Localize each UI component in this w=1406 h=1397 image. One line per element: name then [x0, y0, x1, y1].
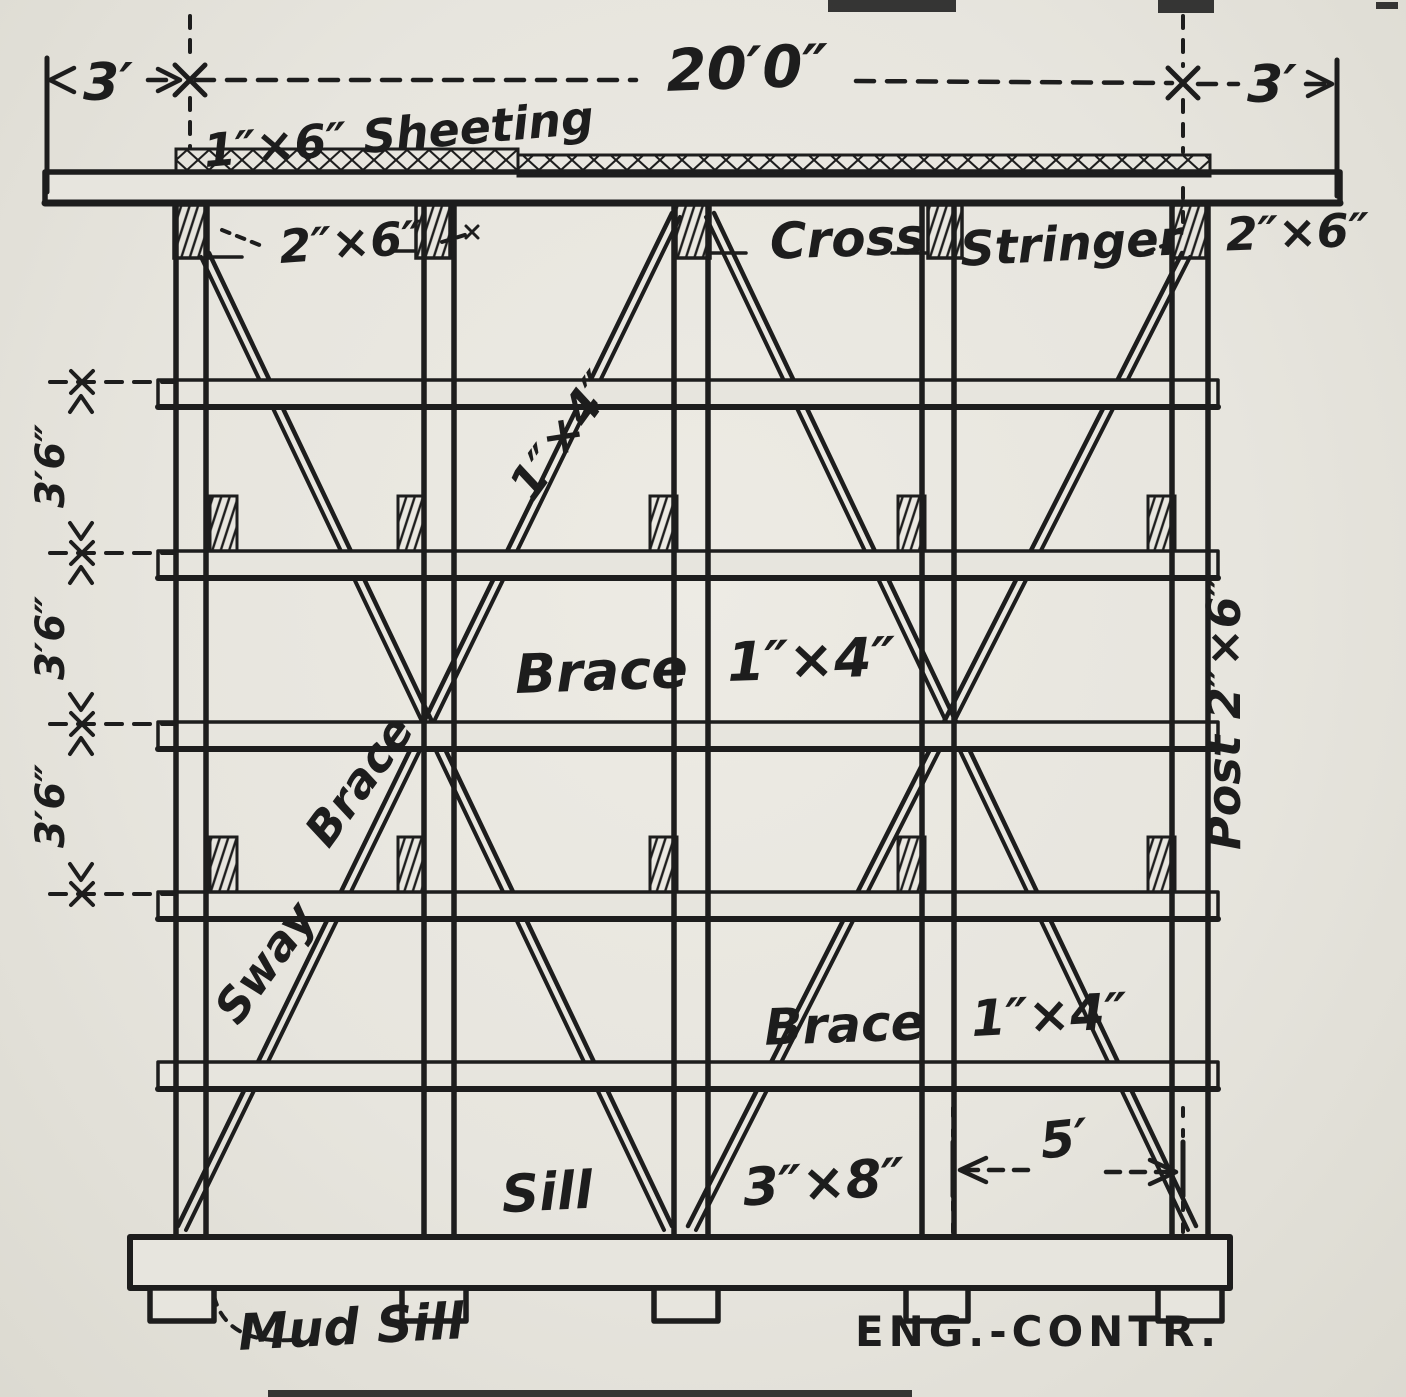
scab-block: [1148, 496, 1175, 551]
dim-label-overhang-left: 3′: [83, 53, 133, 113]
label-brace-size: 1″×4″: [726, 625, 897, 694]
smudge: [828, 0, 956, 12]
dim-label-span: 20′0″: [665, 31, 830, 105]
label-brace-lower: Brace: [763, 993, 925, 1057]
tier-arrow: [70, 694, 92, 710]
label-post: Post 2″×6″: [1197, 575, 1251, 850]
label-mud-sill: Mud Sill: [237, 1292, 467, 1362]
tier-arrow: [70, 738, 92, 754]
label-credit: ENG.-CONTR.: [855, 1307, 1221, 1356]
tier-arrow: [70, 864, 92, 880]
leader-cap-size: [222, 230, 262, 246]
scab-block: [210, 837, 237, 892]
scab-block: [898, 837, 925, 892]
wale-board: [158, 722, 1218, 749]
dim-label-tier-3: 3′6″: [28, 764, 74, 848]
wale-board: [158, 1062, 1218, 1089]
cross-stringer-block: [928, 205, 962, 258]
label-stringer: Stringer: [959, 210, 1187, 278]
tier-arrow: [70, 396, 92, 412]
sheeting-strip: [518, 155, 1210, 176]
mud-sill-foot: [150, 1288, 214, 1321]
label-sill-size: 3″×8″: [741, 1147, 907, 1218]
sill-board: [130, 1237, 1230, 1288]
label-cap-size: 2″×6″: [277, 210, 425, 274]
label-stringer-size: 2″×6″: [1225, 203, 1371, 262]
cross-stringer-block: [174, 205, 208, 258]
dim-label-post-spacing: 5′: [1037, 1108, 1091, 1171]
label-brace: Brace: [514, 637, 689, 706]
scab-block: [898, 496, 925, 551]
scab-block: [650, 837, 677, 892]
dim-label-tier-2: 3′6″: [28, 596, 74, 680]
dim-line: [856, 81, 1172, 83]
tier-arrow: [70, 523, 92, 539]
wale-board: [158, 551, 1218, 578]
scab-block: [210, 496, 237, 551]
scab-block: [650, 496, 677, 551]
scab-block: [1148, 837, 1175, 892]
tier-arrow: [70, 567, 92, 583]
label-sill: Sill: [500, 1161, 595, 1226]
dim-arrow-left: [50, 68, 74, 92]
smudge: [1376, 2, 1398, 9]
wales: [158, 380, 1218, 1089]
cross-stringer-block: [676, 205, 710, 258]
dim-label-tier-1: 3′6″: [28, 424, 74, 508]
mud-sill-foot: [654, 1288, 718, 1321]
smudge: [1158, 0, 1214, 13]
wale-board: [158, 892, 1218, 919]
trestle-bent-drawing: 1″×6″ Sheeting 3′ 20′0″ 3′ 2″×6″ Cross S…: [0, 0, 1406, 1397]
scab-block: [398, 496, 425, 551]
label-cross: Cross: [769, 207, 926, 270]
smudge: [268, 1390, 912, 1397]
dim-label-overhang-right: 3′: [1247, 55, 1297, 115]
label-brace-lower-size: 1″×4″: [970, 982, 1130, 1048]
wale-board: [158, 380, 1218, 407]
scab-block: [398, 837, 425, 892]
